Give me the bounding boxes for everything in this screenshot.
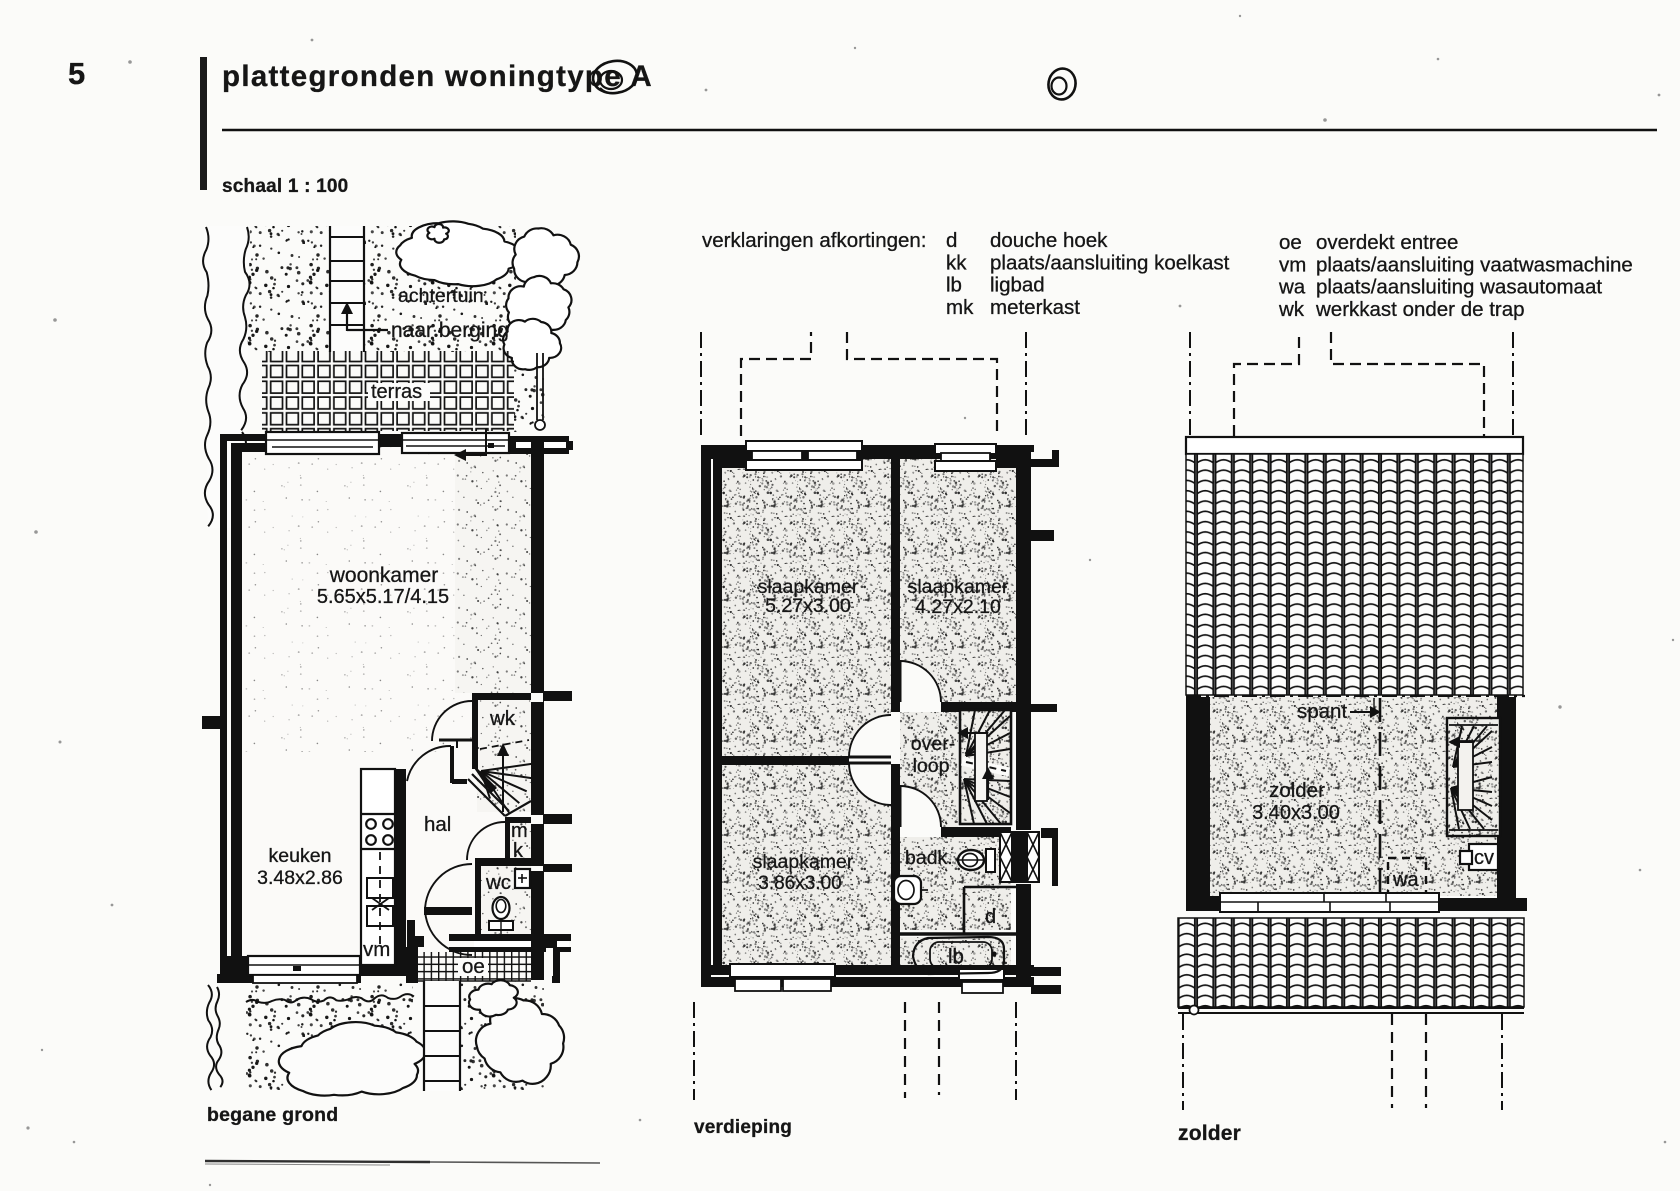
svg-text:5: 5 [68, 56, 85, 91]
svg-text:lb: lb [946, 274, 962, 297]
svg-text:slaapkamer: slaapkamer [753, 851, 854, 873]
svg-text:hal: hal [424, 813, 451, 836]
svg-text:wa: wa [1278, 276, 1306, 299]
svg-text:badk.: badk. [905, 847, 953, 869]
svg-text:5.27x3.00: 5.27x3.00 [765, 595, 851, 617]
svg-text:d: d [946, 229, 957, 252]
svg-text:cv: cv [1474, 847, 1494, 869]
svg-text:spant: spant [1297, 700, 1347, 723]
svg-text:m: m [511, 820, 528, 842]
svg-text:woonkamer: woonkamer [329, 564, 439, 587]
svg-text:oe: oe [1279, 231, 1302, 254]
svg-text:verklaringen afkortingen:: verklaringen afkortingen: [702, 229, 927, 252]
svg-text:keuken: keuken [269, 845, 332, 867]
svg-text:terras: terras [371, 381, 422, 403]
svg-text:wk: wk [489, 707, 516, 730]
svg-text:plaats/aansluiting wasautomaat: plaats/aansluiting wasautomaat [1316, 276, 1602, 299]
svg-text:schaal 1 : 100: schaal 1 : 100 [222, 176, 348, 197]
svg-text:3.48x2.86: 3.48x2.86 [257, 867, 343, 889]
svg-text:achtertuin: achtertuin [398, 285, 484, 307]
svg-text:overdekt entree: overdekt entree [1316, 231, 1458, 254]
svg-text:werkkast onder de trap: werkkast onder de trap [1315, 298, 1525, 321]
svg-text:4.27x2.10: 4.27x2.10 [915, 596, 1001, 618]
svg-text:k: k [513, 840, 524, 862]
svg-text:3.40x3.00: 3.40x3.00 [1252, 802, 1340, 824]
svg-text:d: d [985, 906, 996, 928]
svg-text:begane grond: begane grond [207, 1104, 338, 1126]
svg-text:slaapkamer: slaapkamer [908, 576, 1009, 598]
svg-text:wk: wk [1278, 298, 1305, 321]
svg-text:kk: kk [946, 251, 967, 274]
svg-text:3.86x3.00: 3.86x3.00 [758, 873, 841, 894]
svg-text:plattegronden woningtype A: plattegronden woningtype A [222, 60, 653, 93]
svg-text:zolder: zolder [1178, 1122, 1241, 1145]
svg-text:wa: wa [1392, 869, 1419, 891]
svg-text:lb: lb [948, 945, 964, 968]
svg-text:douche hoek: douche hoek [990, 229, 1108, 252]
svg-text:loop: loop [913, 755, 950, 777]
svg-text:ligbad: ligbad [990, 274, 1045, 297]
svg-text:wc: wc [485, 871, 511, 894]
svg-text:vm: vm [363, 938, 390, 961]
svg-text:plaats/aansluiting koelkast: plaats/aansluiting koelkast [990, 251, 1230, 274]
svg-text:over-: over- [911, 733, 955, 755]
svg-text:vm: vm [1279, 253, 1306, 276]
svg-text:zolder: zolder [1269, 779, 1325, 802]
svg-text:plaats/aansluiting vaatwasmach: plaats/aansluiting vaatwasmachine [1316, 253, 1633, 276]
svg-text:mk: mk [946, 296, 974, 319]
svg-text:verdieping: verdieping [694, 1117, 792, 1138]
svg-text:oe: oe [462, 955, 485, 978]
svg-text:naar berging: naar berging [391, 319, 509, 342]
svg-text:5.65x5.17/4.15: 5.65x5.17/4.15 [317, 586, 449, 608]
svg-text:meterkast: meterkast [990, 296, 1080, 319]
